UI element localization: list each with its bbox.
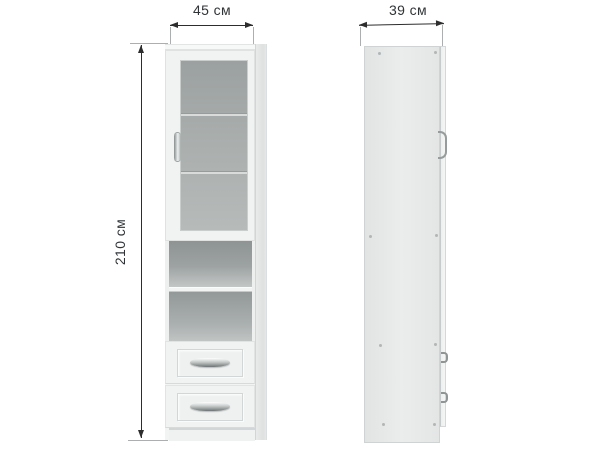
screw-cap-icon [378,52,381,55]
extension-line [253,27,254,44]
screw-cap-icon [435,234,438,237]
side-door-handle-icon [438,131,447,159]
screw-cap-icon [433,423,436,426]
cabinet-side-view [364,46,440,443]
extension-line [128,440,168,441]
glass-shelf-line [181,171,247,174]
open-shelf-upper [169,241,252,287]
screw-cap-icon [382,423,385,426]
width-arrow-icon [170,25,253,26]
extension-line [442,25,443,46]
drawer-handle-icon [190,402,230,411]
side-view-front-edge [440,46,446,427]
plinth [169,428,255,441]
cabinet-front-view [165,44,255,440]
extension-line [170,27,171,44]
drawer-top [165,341,255,384]
extension-line [360,27,361,46]
extension-line [130,43,168,44]
product-dimension-diagram: 45 см 39 см 210 см [0,0,608,456]
open-shelf-lower [169,292,252,341]
width-dimension-label: 45 см [168,2,256,18]
cabinet-right-edge [255,44,267,440]
screw-cap-icon [369,235,372,238]
height-arrow-icon [141,45,142,438]
screw-cap-icon [434,51,437,54]
glass-door [165,50,255,241]
frosted-glass-pane [180,60,248,231]
glass-shelf-line [181,113,247,116]
screw-cap-icon [379,344,382,347]
screw-cap-icon [434,343,437,346]
door-handle-icon [174,133,181,161]
open-shelf-section [165,241,255,341]
drawer-bottom [165,385,255,428]
height-dimension-label: 210 см [112,198,128,286]
side-drawer-handle-icon [441,392,448,403]
depth-arrow-icon [359,23,444,26]
side-drawer-handle-icon [441,352,448,363]
depth-dimension-label: 39 см [364,2,452,18]
niche-interior [169,241,252,341]
drawer-handle-icon [190,358,230,367]
